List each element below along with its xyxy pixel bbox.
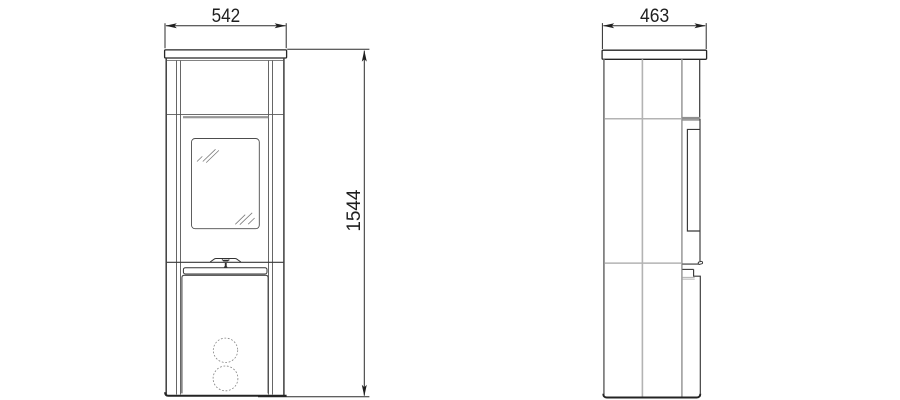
svg-text:1544: 1544 bbox=[343, 190, 365, 232]
svg-text:463: 463 bbox=[640, 5, 669, 27]
svg-text:542: 542 bbox=[212, 5, 241, 27]
